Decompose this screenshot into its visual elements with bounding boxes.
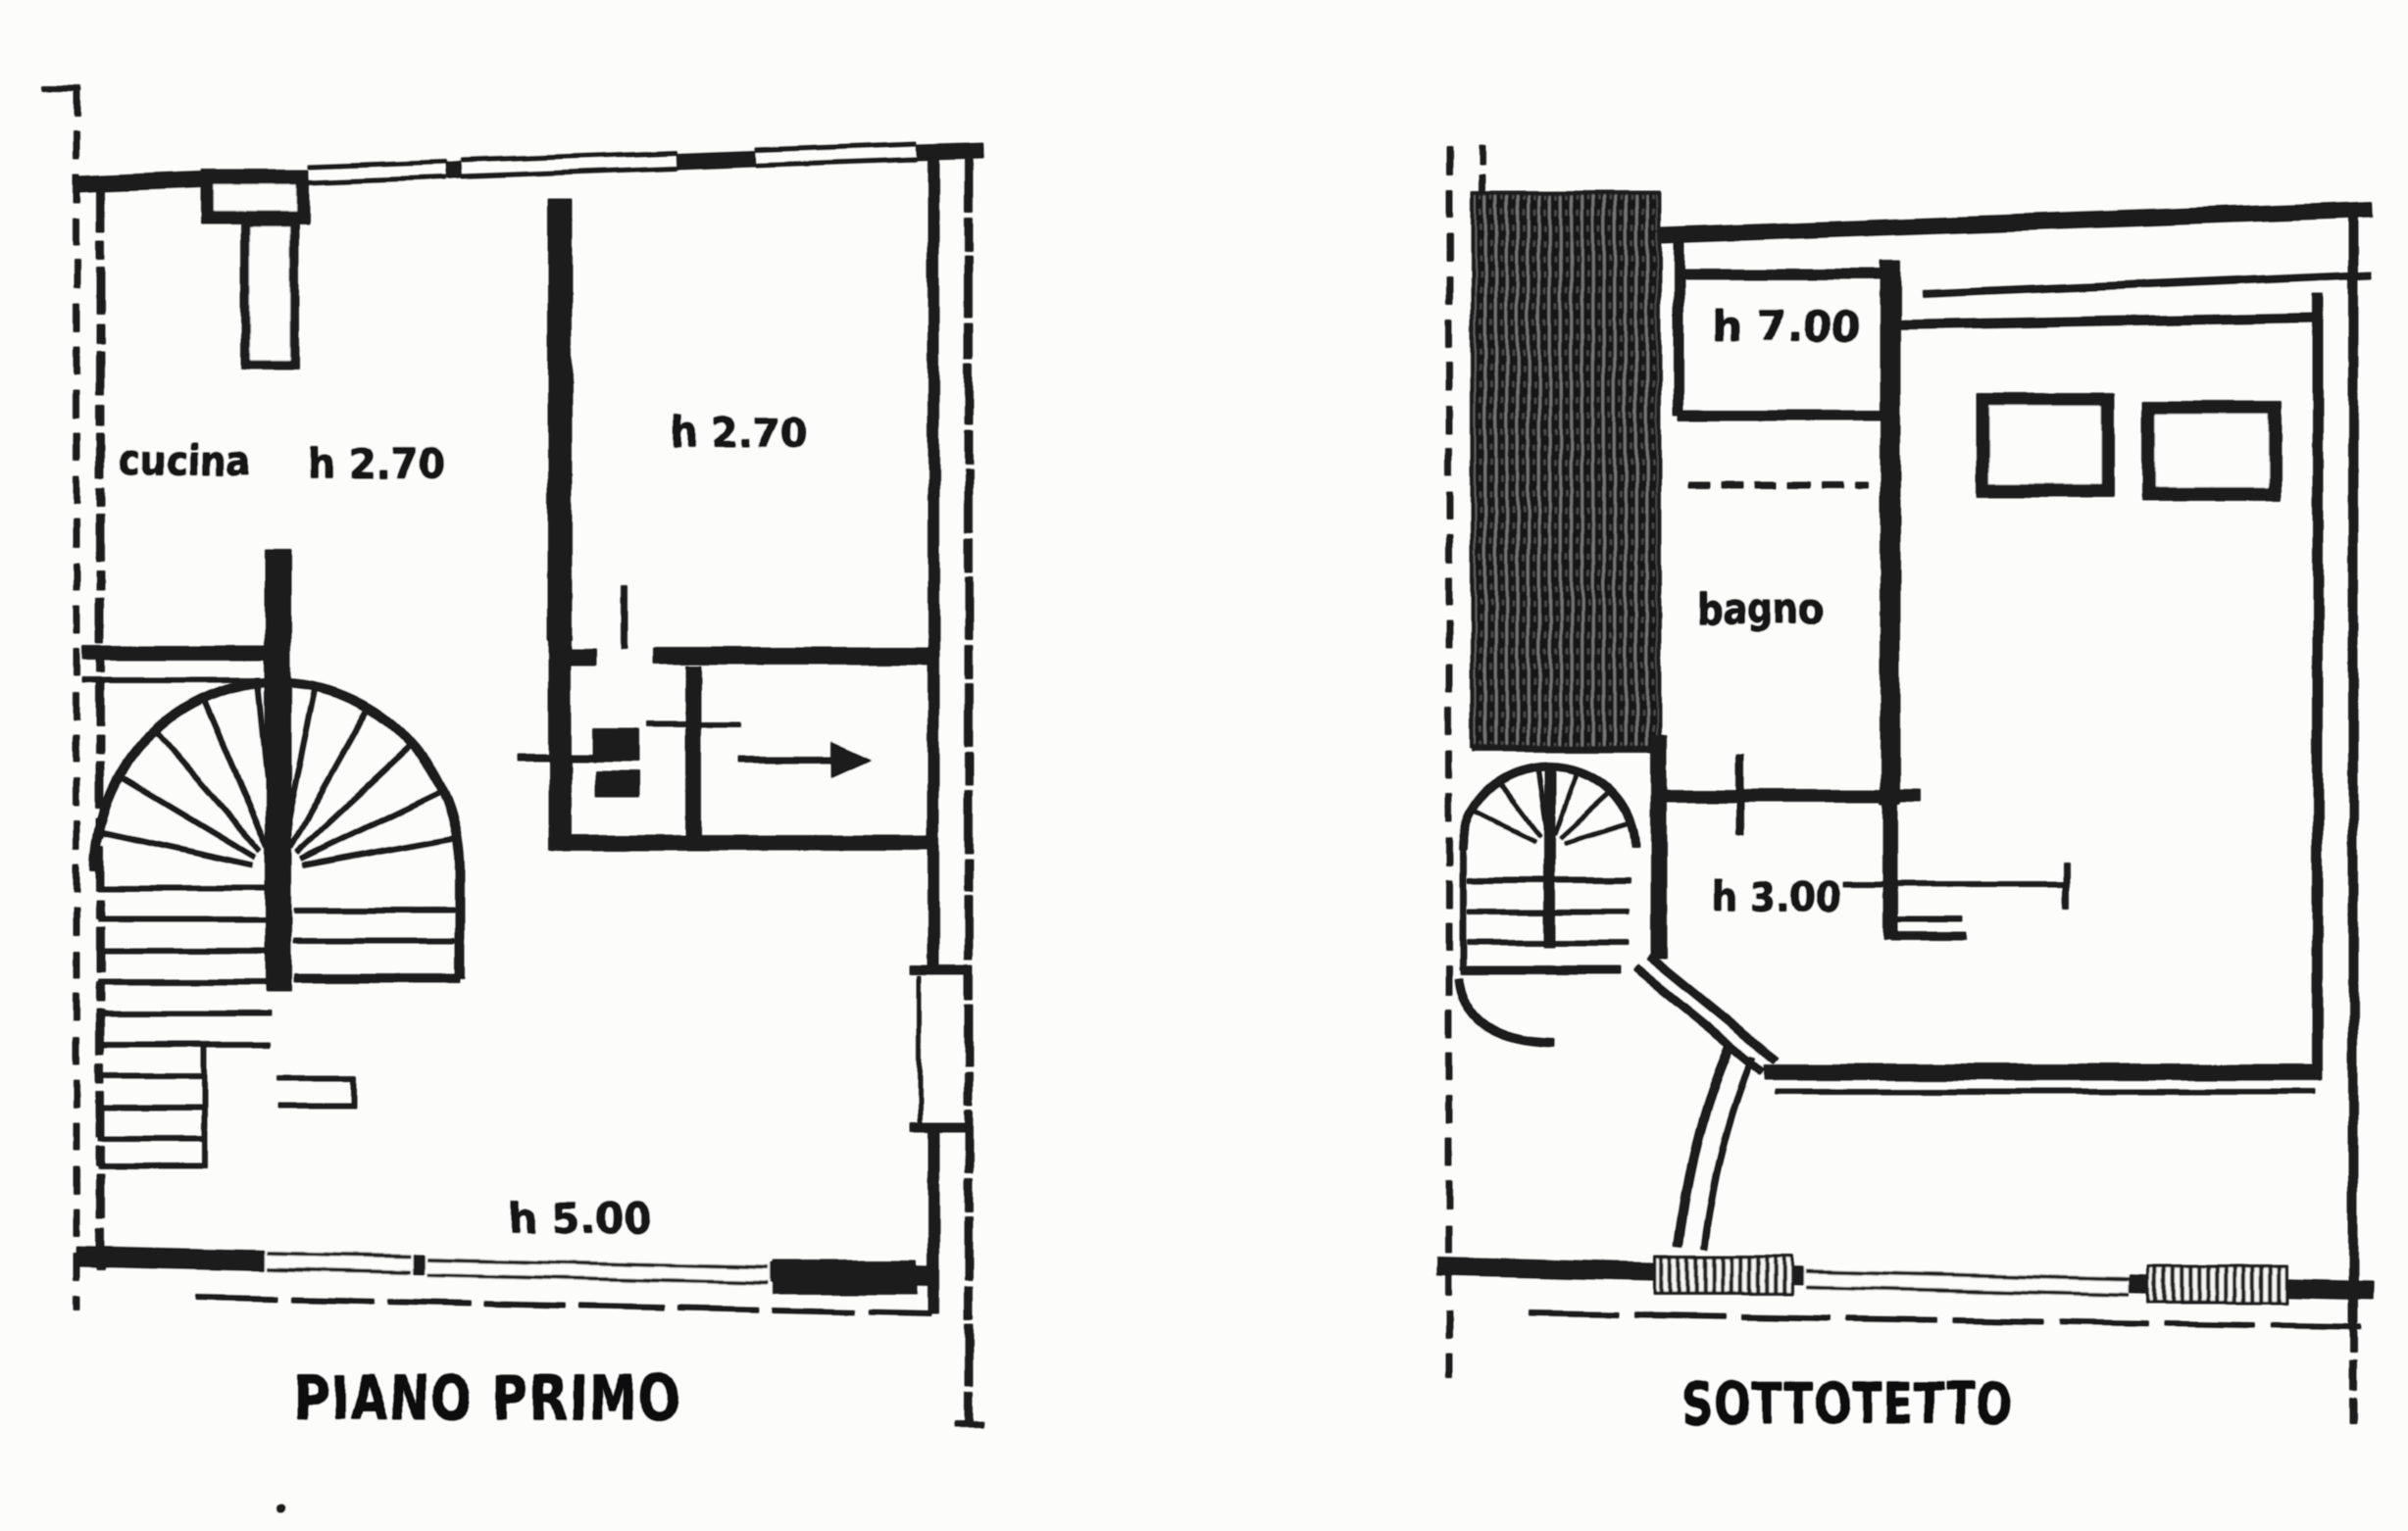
- room-label-cucina: cucina: [119, 436, 250, 484]
- bottom-wall: [76, 1237, 931, 1313]
- window-top-1: [309, 162, 446, 182]
- top-wall: [76, 179, 201, 184]
- stair-spoke: [120, 776, 256, 858]
- curved-wall: [1459, 978, 1554, 1043]
- hatched-roof-area: [1473, 193, 1659, 747]
- plan-sottotetto: h 7.00 bagno h 3.00 SOTTOTETTO: [1437, 145, 2373, 1437]
- stair-landing: [278, 1078, 353, 1106]
- main-attic-room: [1765, 318, 2322, 1092]
- height-label-room: h 2.70: [671, 409, 806, 457]
- floorplan-canvas: cucina h 2.70 h 2.70 h 5.00 PIANO PRIMO: [0, 0, 2408, 1531]
- door-swing-wedge: [831, 742, 871, 777]
- skylight: [2149, 408, 2275, 494]
- window-top-3: [755, 144, 917, 166]
- door-right-wall: [910, 970, 973, 1127]
- top-wall-pier: [677, 159, 755, 162]
- top-wall: [1661, 210, 2373, 235]
- stair-spoke: [303, 838, 458, 866]
- spiral-stair: [82, 549, 460, 1168]
- plan-title-piano-primo: PIANO PRIMO: [293, 1362, 681, 1434]
- bottom-wall: [1437, 1257, 2373, 1327]
- window-sill: [773, 1260, 917, 1294]
- chimney-pillar: [201, 170, 309, 365]
- bathroom-walls: [518, 584, 929, 851]
- top-wall-pier: [446, 170, 461, 171]
- stair-spoke: [99, 831, 253, 865]
- top-wall-inner-line: [1922, 274, 2371, 294]
- height-label-lower: h 5.00: [509, 1195, 652, 1243]
- stair-spoke: [301, 791, 443, 860]
- window-top-2: [461, 153, 677, 176]
- window-sill: [1655, 1257, 1792, 1294]
- top-wall: [917, 151, 983, 153]
- curved-corridor-walls: [1635, 957, 1777, 1249]
- plan-piano-primo: cucina h 2.70 h 2.70 h 5.00 PIANO PRIMO: [43, 88, 984, 1513]
- stair-spoke: [290, 708, 369, 849]
- ink-speck: [277, 1506, 285, 1513]
- room-label-bagno: bagno: [1696, 584, 1824, 634]
- height-label-attic: h 7.00: [1712, 303, 1861, 351]
- spiral-stair-small: [1459, 735, 1659, 1043]
- window-sill: [2149, 1266, 2286, 1302]
- dimension-line: [1843, 863, 2067, 919]
- scanned-floorplan-page: cucina h 2.70 h 2.70 h 5.00 PIANO PRIMO: [0, 0, 2408, 1531]
- height-label-stair: h 3.00: [1712, 873, 1841, 921]
- height-label-kitchen: h 2.70: [308, 440, 445, 488]
- stair-spoke: [296, 745, 413, 854]
- skylight: [1982, 400, 2108, 490]
- plan-title-sottotetto: SOTTOTETTO: [1682, 1370, 2014, 1437]
- sink-fixture: [595, 770, 640, 798]
